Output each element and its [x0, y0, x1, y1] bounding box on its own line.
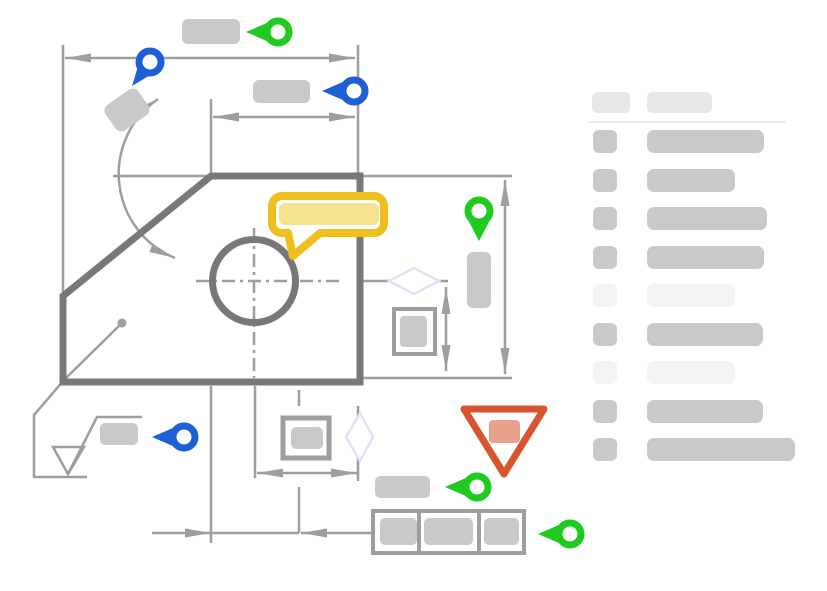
row-label-placeholder: [647, 169, 735, 192]
frame-cell-placeholder: [380, 518, 417, 545]
green-pin-left-icon-tolerance[interactable]: [445, 476, 488, 498]
hole-feature: [196, 228, 344, 378]
row-label-placeholder: [647, 207, 767, 230]
arrowhead: [257, 469, 283, 478]
partial-dimension-value-placeholder: [253, 80, 310, 103]
row-label-placeholder: [647, 284, 735, 307]
row-icon-placeholder: [593, 130, 617, 153]
row-label-placeholder: [647, 130, 764, 153]
row-icon-placeholder: [593, 207, 617, 230]
row-label-placeholder: [647, 361, 735, 384]
sidebar-header-badge: [592, 92, 630, 113]
sidebar-header: [588, 92, 818, 113]
surface-finish-value-placeholder: [100, 423, 138, 445]
pin-ring: [468, 200, 490, 222]
row-icon-placeholder: [593, 246, 617, 269]
sidebar-divider: [588, 121, 786, 123]
arrowhead: [185, 529, 211, 538]
row-icon-placeholder: [593, 284, 617, 307]
green-pin-left-icon-top[interactable]: [246, 21, 289, 43]
top-dimension-value-placeholder: [182, 19, 240, 44]
datum-right-placeholder: [400, 316, 427, 347]
row-icon-placeholder: [593, 438, 617, 461]
row-icon-placeholder: [593, 361, 617, 384]
arrowhead: [149, 244, 176, 262]
sidebar-row-9[interactable]: [588, 438, 818, 461]
row-label-placeholder: [647, 400, 763, 423]
warning-marker[interactable]: [464, 409, 544, 474]
row-icon-placeholder: [593, 169, 617, 192]
sidebar-header-title: [647, 92, 712, 113]
row-icon-placeholder: [593, 323, 617, 346]
sidebar-row-2[interactable]: [588, 169, 818, 192]
blue-pin-left-icon-top[interactable]: [322, 80, 365, 102]
blue-pin-left-icon-surface[interactable]: [152, 426, 195, 448]
comment-bubble[interactable]: [272, 196, 384, 256]
snap-diamond-right: [389, 268, 439, 294]
sidebar-row-7[interactable]: [588, 361, 818, 384]
row-label-placeholder: [647, 438, 795, 461]
arrowhead: [329, 113, 355, 122]
snap-diamond-bottom: [346, 413, 373, 461]
arrowhead: [329, 54, 355, 63]
arrowhead: [501, 348, 510, 374]
row-icon-placeholder: [593, 400, 617, 423]
pin-ring: [139, 51, 161, 73]
arrowhead: [65, 54, 91, 63]
frame-cell-placeholder: [484, 518, 519, 545]
sidebar-row-8[interactable]: [588, 400, 818, 423]
tolerance-value-placeholder: [375, 476, 430, 498]
sidebar-row-1[interactable]: [588, 130, 818, 153]
sidebar-row-4[interactable]: [588, 246, 818, 269]
green-map-pin-icon[interactable]: [468, 200, 490, 241]
green-pin-left-icon-frame[interactable]: [538, 523, 581, 545]
arrowhead: [501, 180, 510, 206]
row-label-placeholder: [647, 246, 764, 269]
frame-cell-placeholder: [424, 518, 473, 545]
sidebar-rows: [588, 130, 818, 461]
row-label-placeholder: [647, 323, 763, 346]
warning-value-placeholder: [489, 420, 520, 443]
arrowhead: [301, 529, 327, 538]
comment-text-placeholder: [279, 203, 379, 225]
sidebar-row-5[interactable]: [588, 284, 818, 307]
feature-control-frame: [373, 511, 524, 553]
arrowhead: [331, 469, 357, 478]
surface-finish-callout: [34, 319, 142, 478]
sidebar-row-3[interactable]: [588, 207, 818, 230]
arrowhead: [442, 345, 451, 371]
drawing-review-mockup: [0, 0, 827, 591]
blue-pin-tilted-icon[interactable]: [132, 51, 161, 86]
right-dimension-value-placeholder: [467, 252, 491, 308]
angle-value-placeholder: [102, 86, 153, 134]
datum-bottom-placeholder: [291, 427, 323, 449]
arrowhead: [442, 288, 451, 314]
sidebar-panel: [588, 92, 818, 477]
leader-dot: [118, 319, 127, 328]
sidebar-row-6[interactable]: [588, 323, 818, 346]
arrowhead: [213, 113, 239, 122]
